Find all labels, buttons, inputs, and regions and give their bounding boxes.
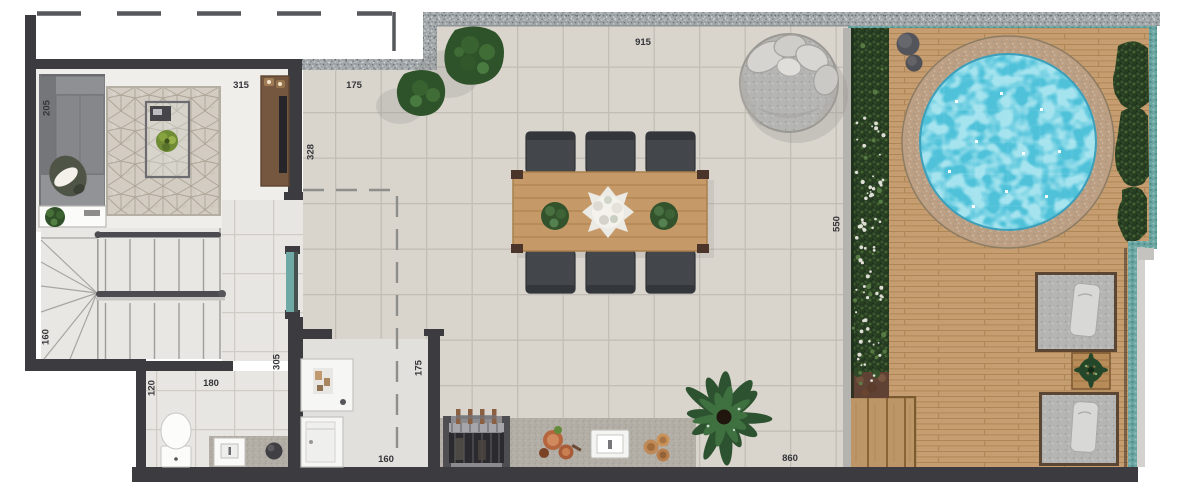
svg-text:120: 120	[147, 380, 158, 396]
svg-text:305: 305	[272, 353, 283, 370]
svg-text:175: 175	[414, 359, 425, 376]
svg-text:205: 205	[42, 99, 53, 116]
svg-text:915: 915	[635, 37, 652, 48]
svg-text:175: 175	[346, 80, 363, 91]
svg-text:550: 550	[832, 216, 843, 232]
svg-text:328: 328	[306, 144, 317, 160]
svg-text:180: 180	[203, 378, 219, 389]
svg-text:160: 160	[378, 454, 394, 465]
svg-text:315: 315	[233, 80, 250, 91]
svg-text:160: 160	[41, 329, 52, 345]
svg-text:860: 860	[782, 453, 798, 464]
